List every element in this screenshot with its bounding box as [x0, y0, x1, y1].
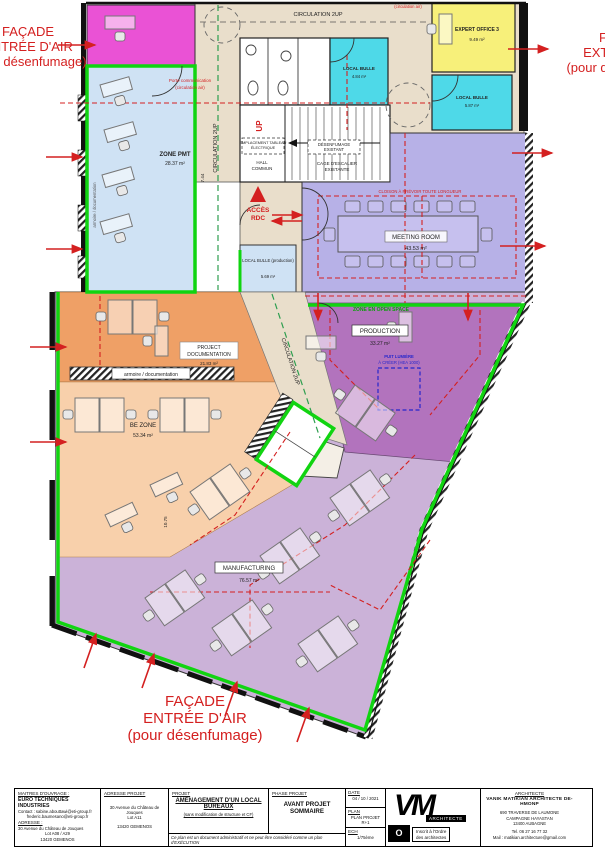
ordre-logo-icon: O	[388, 825, 410, 842]
acces-rdc-label-1: ACCÈS	[247, 205, 270, 214]
local-bulle-2-label: LOCAL BULLE	[456, 95, 488, 100]
title-block-architect: ARCHITECTE VANIK MATIKIAN ARCHITECTE DE-…	[481, 789, 578, 846]
local-bulle-1-area-label: 4.84 m²	[352, 74, 367, 79]
title-block-date-plan-scale: DATE 04 / 10 / 2021 PLAN PLAN PROJET R+1…	[346, 789, 386, 846]
upper-floor-section	[87, 3, 526, 303]
project-doc-label-1: PROJECT	[197, 345, 220, 351]
production-area-label: 33.27 m²	[370, 341, 390, 347]
title-block-disclaimer: Ce plan est un document administratif et…	[169, 833, 345, 846]
meeting-room-area-label: 43.53 m²	[405, 246, 427, 252]
floor-plan-drawing: ZONE PMT 28.37 m² EXPERT OFFICE 3 9.49 m…	[0, 0, 605, 762]
armoire-doc-vert-label: armoire / documentation	[92, 182, 97, 228]
armoire-doc-label: armoire / documentation	[124, 372, 178, 378]
zone-pmt-label: ZONE PMT	[160, 152, 191, 158]
circulation-air-label: (circulation air)	[394, 4, 422, 9]
project-doc-label-2: DOCUMENTATION	[187, 352, 231, 358]
production-label: PRODUCTION	[360, 329, 400, 335]
manufacturing-label: MANUFACTURING	[223, 566, 276, 572]
be-zone-area-label: 53.34 m²	[133, 433, 153, 439]
title-block-project: PROJET AMÉNAGEMENT D'UN LOCAL BUREAUX (s…	[169, 789, 346, 846]
tableau-label-1: EMPLACEMENT TABLEAU	[240, 141, 287, 145]
dim-744: 7.44	[200, 173, 205, 182]
porte-comm-label-2: (circulation air)	[175, 85, 205, 90]
floor-plan-sheet: ZONE PMT 28.37 m² EXPERT OFFICE 3 9.49 m…	[0, 0, 605, 850]
porte-comm-label-1: Porte communication	[169, 78, 212, 83]
expert-office-area-label: 9.49 m²	[469, 37, 485, 42]
local-bulle-2-area-label: 5.87 m²	[465, 103, 480, 108]
zone-open-space-label: ZONE EN OPEN SPACE	[353, 307, 410, 313]
be-zone-label: BE ZONE	[130, 423, 156, 429]
manufacturing-area-label: 76.57 m²	[239, 578, 259, 584]
cage-escalier-label-1: CAGE D'ESCALIER	[317, 161, 358, 166]
architecte-chip: ARCHITECTE	[426, 815, 466, 822]
dim-1075: 10.75	[163, 516, 168, 528]
project-doc-area-label: 21.83 m²	[200, 361, 218, 366]
cage-escalier-label-2: EXISTANTE	[325, 167, 350, 172]
local-bulle-production-area	[240, 245, 296, 292]
ordre-des-architectes-label: Inscrit à l'Ordre des architectes	[412, 827, 450, 842]
acces-rdc-label-2: RDC	[251, 215, 265, 222]
circulation-top-label: CIRCULATION 2UP	[293, 12, 342, 18]
title-block-owner: MAITRES D'OUVRAGE : EURO TECHNIQUES INDU…	[15, 789, 101, 846]
tableau-label-2: ÉLECTRIQUE	[251, 145, 276, 150]
facade-extraction-annotation: FAÇADE EXTRACTION (pour désenfumage)	[535, 30, 605, 75]
local-bulle-prod-label: LOCAL BULLE (production)	[242, 258, 294, 263]
local-bulle-prod-area-label: 5.69 m²	[261, 274, 276, 279]
local-bulle-1-label: LOCAL BULLE	[343, 66, 375, 71]
hall-commun-label-2: COMMUN	[252, 166, 273, 171]
circulation-vert-label: CIRCULATION 2UP	[213, 123, 219, 172]
puit-lumiere-label-2: À CRÉER (HEA 1000)	[378, 360, 420, 365]
facade-entree-air-top-annotation: FAÇADE ENTRÉE D'AIR (pour désenfumage)	[0, 24, 118, 69]
title-block-project-address: ADRESSE PROJET 30 Avenue du Château de J…	[101, 789, 169, 846]
local-bulle-1-area	[330, 38, 388, 105]
title-block: MAITRES D'OUVRAGE : EURO TECHNIQUES INDU…	[14, 788, 593, 847]
facade-entree-air-bottom-annotation: FAÇADE ENTRÉE D'AIR (pour désenfumage)	[85, 693, 305, 744]
cloison-label: CLOISON À PRÉVOIR TOUTE LONGUEUR	[379, 189, 462, 194]
vm-architecte-logo: VM ARCHITECTE O Inscrit à l'Ordre des ar…	[386, 789, 481, 846]
up-label: UP	[255, 120, 264, 132]
zone-pmt-area-label: 28.37 m²	[165, 161, 185, 167]
meeting-room-label: MEETING ROOM	[392, 235, 440, 241]
hall-commun-label-1: HALL	[256, 160, 268, 165]
puit-lumiere-label-1: PUIT LUMIÈRE	[384, 354, 414, 359]
desenfumage-label-2: EXISTANT	[324, 147, 345, 152]
expert-office-label: EXPERT OFFICE 3	[455, 27, 499, 33]
